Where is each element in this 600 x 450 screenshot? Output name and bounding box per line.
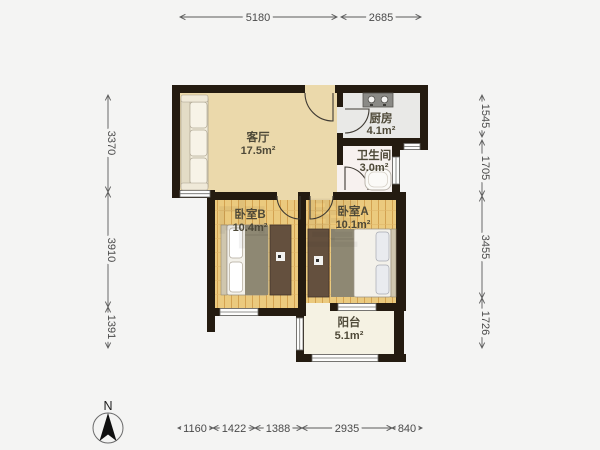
wall-segment	[337, 85, 343, 107]
entry-door-opening	[305, 85, 335, 93]
wall-segment	[337, 133, 343, 165]
balcony-label: 阳台	[338, 315, 361, 329]
dim-top-1: 5180	[246, 12, 270, 24]
window	[220, 309, 258, 316]
dim-right-1: 1545	[479, 104, 491, 128]
window	[338, 304, 376, 311]
window	[297, 318, 304, 350]
floor-plan-image: 中壁 客厅 17.5m² 厨房 4.1m² 卫生间 3.0m² 卧室B 10.4…	[0, 0, 600, 450]
wall-segment	[172, 85, 180, 198]
window	[393, 157, 400, 184]
wall-segment	[396, 192, 406, 311]
floor-plan-svg: 中壁 客厅 17.5m² 厨房 4.1m² 卫生间 3.0m² 卧室B 10.4…	[0, 0, 600, 450]
bedroom-b-area: 10.4m²	[233, 222, 268, 234]
stove-icon	[363, 93, 393, 107]
north-compass-icon: N	[93, 399, 123, 443]
balcony-area: 5.1m²	[335, 330, 364, 342]
dim-left-1: 3370	[105, 131, 117, 155]
living-room-area: 17.5m²	[241, 145, 276, 157]
bedroom-b-label: 卧室B	[234, 207, 265, 221]
dimensions-top: 5180 2685	[180, 12, 421, 24]
bedroom-a-label: 卧室A	[337, 204, 368, 218]
dim-top-2: 2685	[369, 12, 393, 24]
dim-right-3: 3455	[479, 235, 491, 259]
dim-right-4: 1726	[479, 311, 491, 335]
north-label: N	[103, 399, 112, 413]
kitchen-area: 4.1m²	[367, 125, 396, 137]
wall-segment	[335, 85, 428, 93]
dim-bottom-3: 1388	[266, 423, 290, 435]
dim-right-2: 1705	[479, 156, 491, 180]
bathroom-doorway	[337, 165, 343, 192]
dim-bottom-1: 1160	[183, 423, 207, 435]
dimensions-right: 1545 1705 3455 1726	[479, 95, 491, 348]
kitchen-label: 厨房	[370, 111, 393, 125]
wall-segment	[420, 85, 428, 146]
balcony-doorway	[306, 303, 330, 311]
window	[404, 144, 420, 150]
dim-bottom-2: 1422	[222, 423, 246, 435]
sofa	[181, 95, 208, 190]
window	[180, 191, 210, 198]
wall-segment	[394, 303, 404, 362]
bathroom-label: 卫生间	[357, 148, 392, 162]
dim-left-2: 3910	[105, 238, 117, 262]
bedroom-a-area: 10.1m²	[336, 219, 371, 231]
living-room-label: 客厅	[246, 130, 270, 144]
dimensions-left: 3370 3910 1391	[105, 95, 117, 348]
dim-bottom-4: 2935	[335, 423, 359, 435]
dim-bottom-5: 840	[398, 423, 416, 435]
wall-segment	[172, 85, 305, 93]
dim-left-3: 1391	[105, 315, 117, 339]
kitchen-doorway	[337, 107, 343, 133]
bathroom-area: 3.0m²	[360, 162, 389, 174]
dimensions-bottom: 1160 1422 1388 2935 840	[178, 423, 422, 435]
window	[312, 355, 378, 362]
